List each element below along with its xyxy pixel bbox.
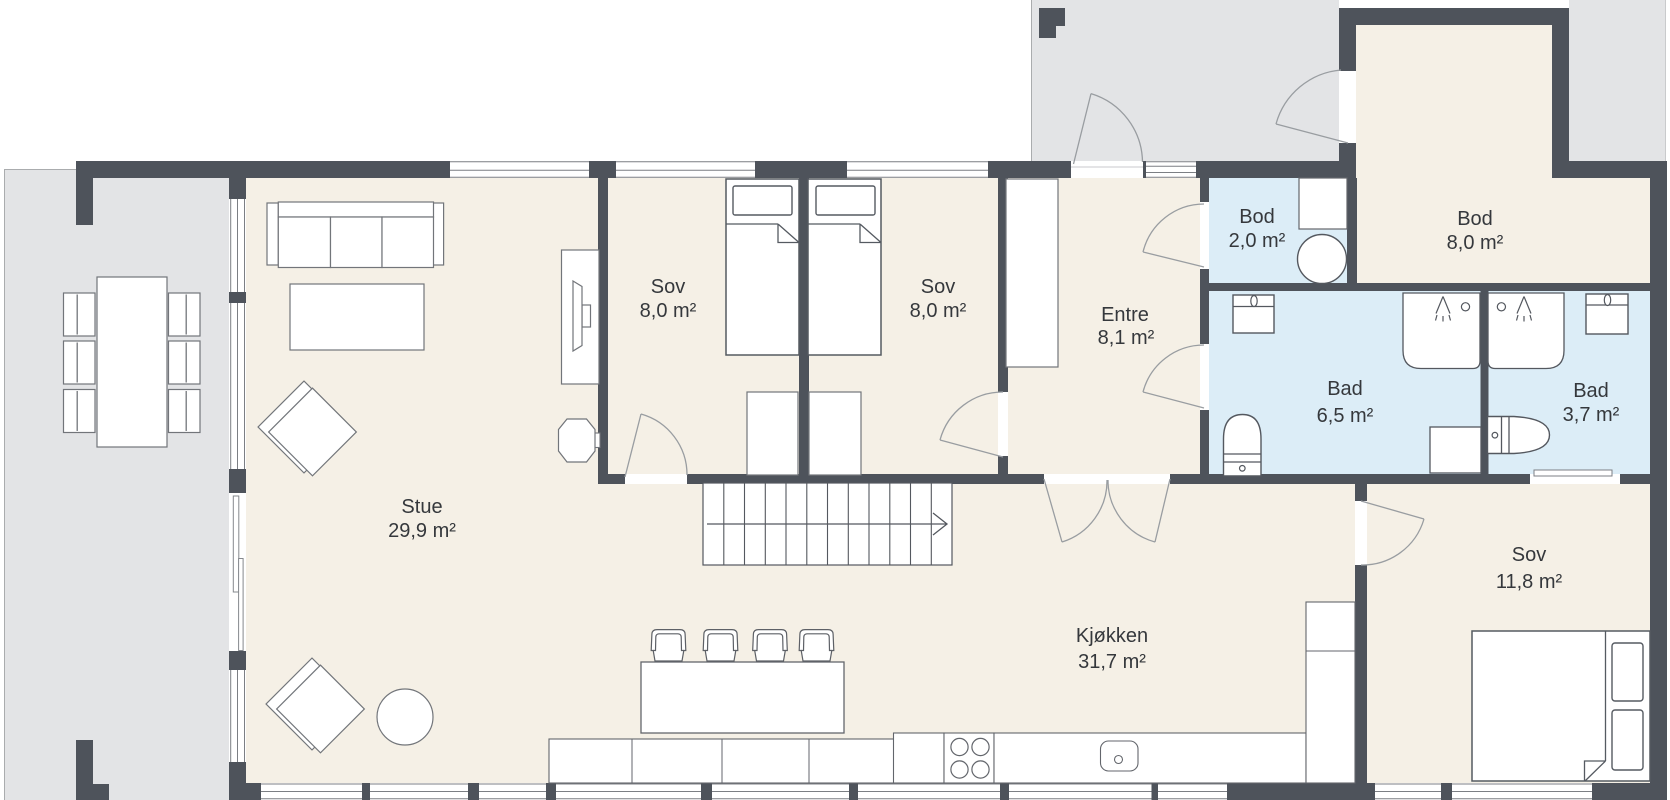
svg-text:8,0 m²: 8,0 m² [640,300,697,322]
svg-text:29,9 m²: 29,9 m² [388,520,456,542]
svg-text:Kjøkken: Kjøkken [1076,625,1148,647]
svg-text:Stue: Stue [401,496,442,518]
svg-text:Sov: Sov [921,276,955,298]
svg-text:2,0 m²: 2,0 m² [1229,230,1286,252]
svg-text:Sov: Sov [1512,544,1546,566]
svg-text:6,5 m²: 6,5 m² [1317,405,1374,427]
svg-text:8,0 m²: 8,0 m² [1447,232,1504,254]
svg-text:Bod: Bod [1457,208,1493,230]
svg-text:Bad: Bad [1573,380,1609,402]
svg-text:8,1 m²: 8,1 m² [1098,327,1155,349]
svg-text:Bad: Bad [1327,378,1363,400]
svg-text:8,0 m²: 8,0 m² [910,300,967,322]
svg-text:3,7 m²: 3,7 m² [1563,404,1620,426]
svg-text:Sov: Sov [651,276,685,298]
svg-text:Bod: Bod [1239,206,1275,228]
svg-text:11,8 m²: 11,8 m² [1496,571,1563,593]
svg-text:Entre: Entre [1101,304,1149,326]
svg-text:31,7 m²: 31,7 m² [1078,651,1146,673]
